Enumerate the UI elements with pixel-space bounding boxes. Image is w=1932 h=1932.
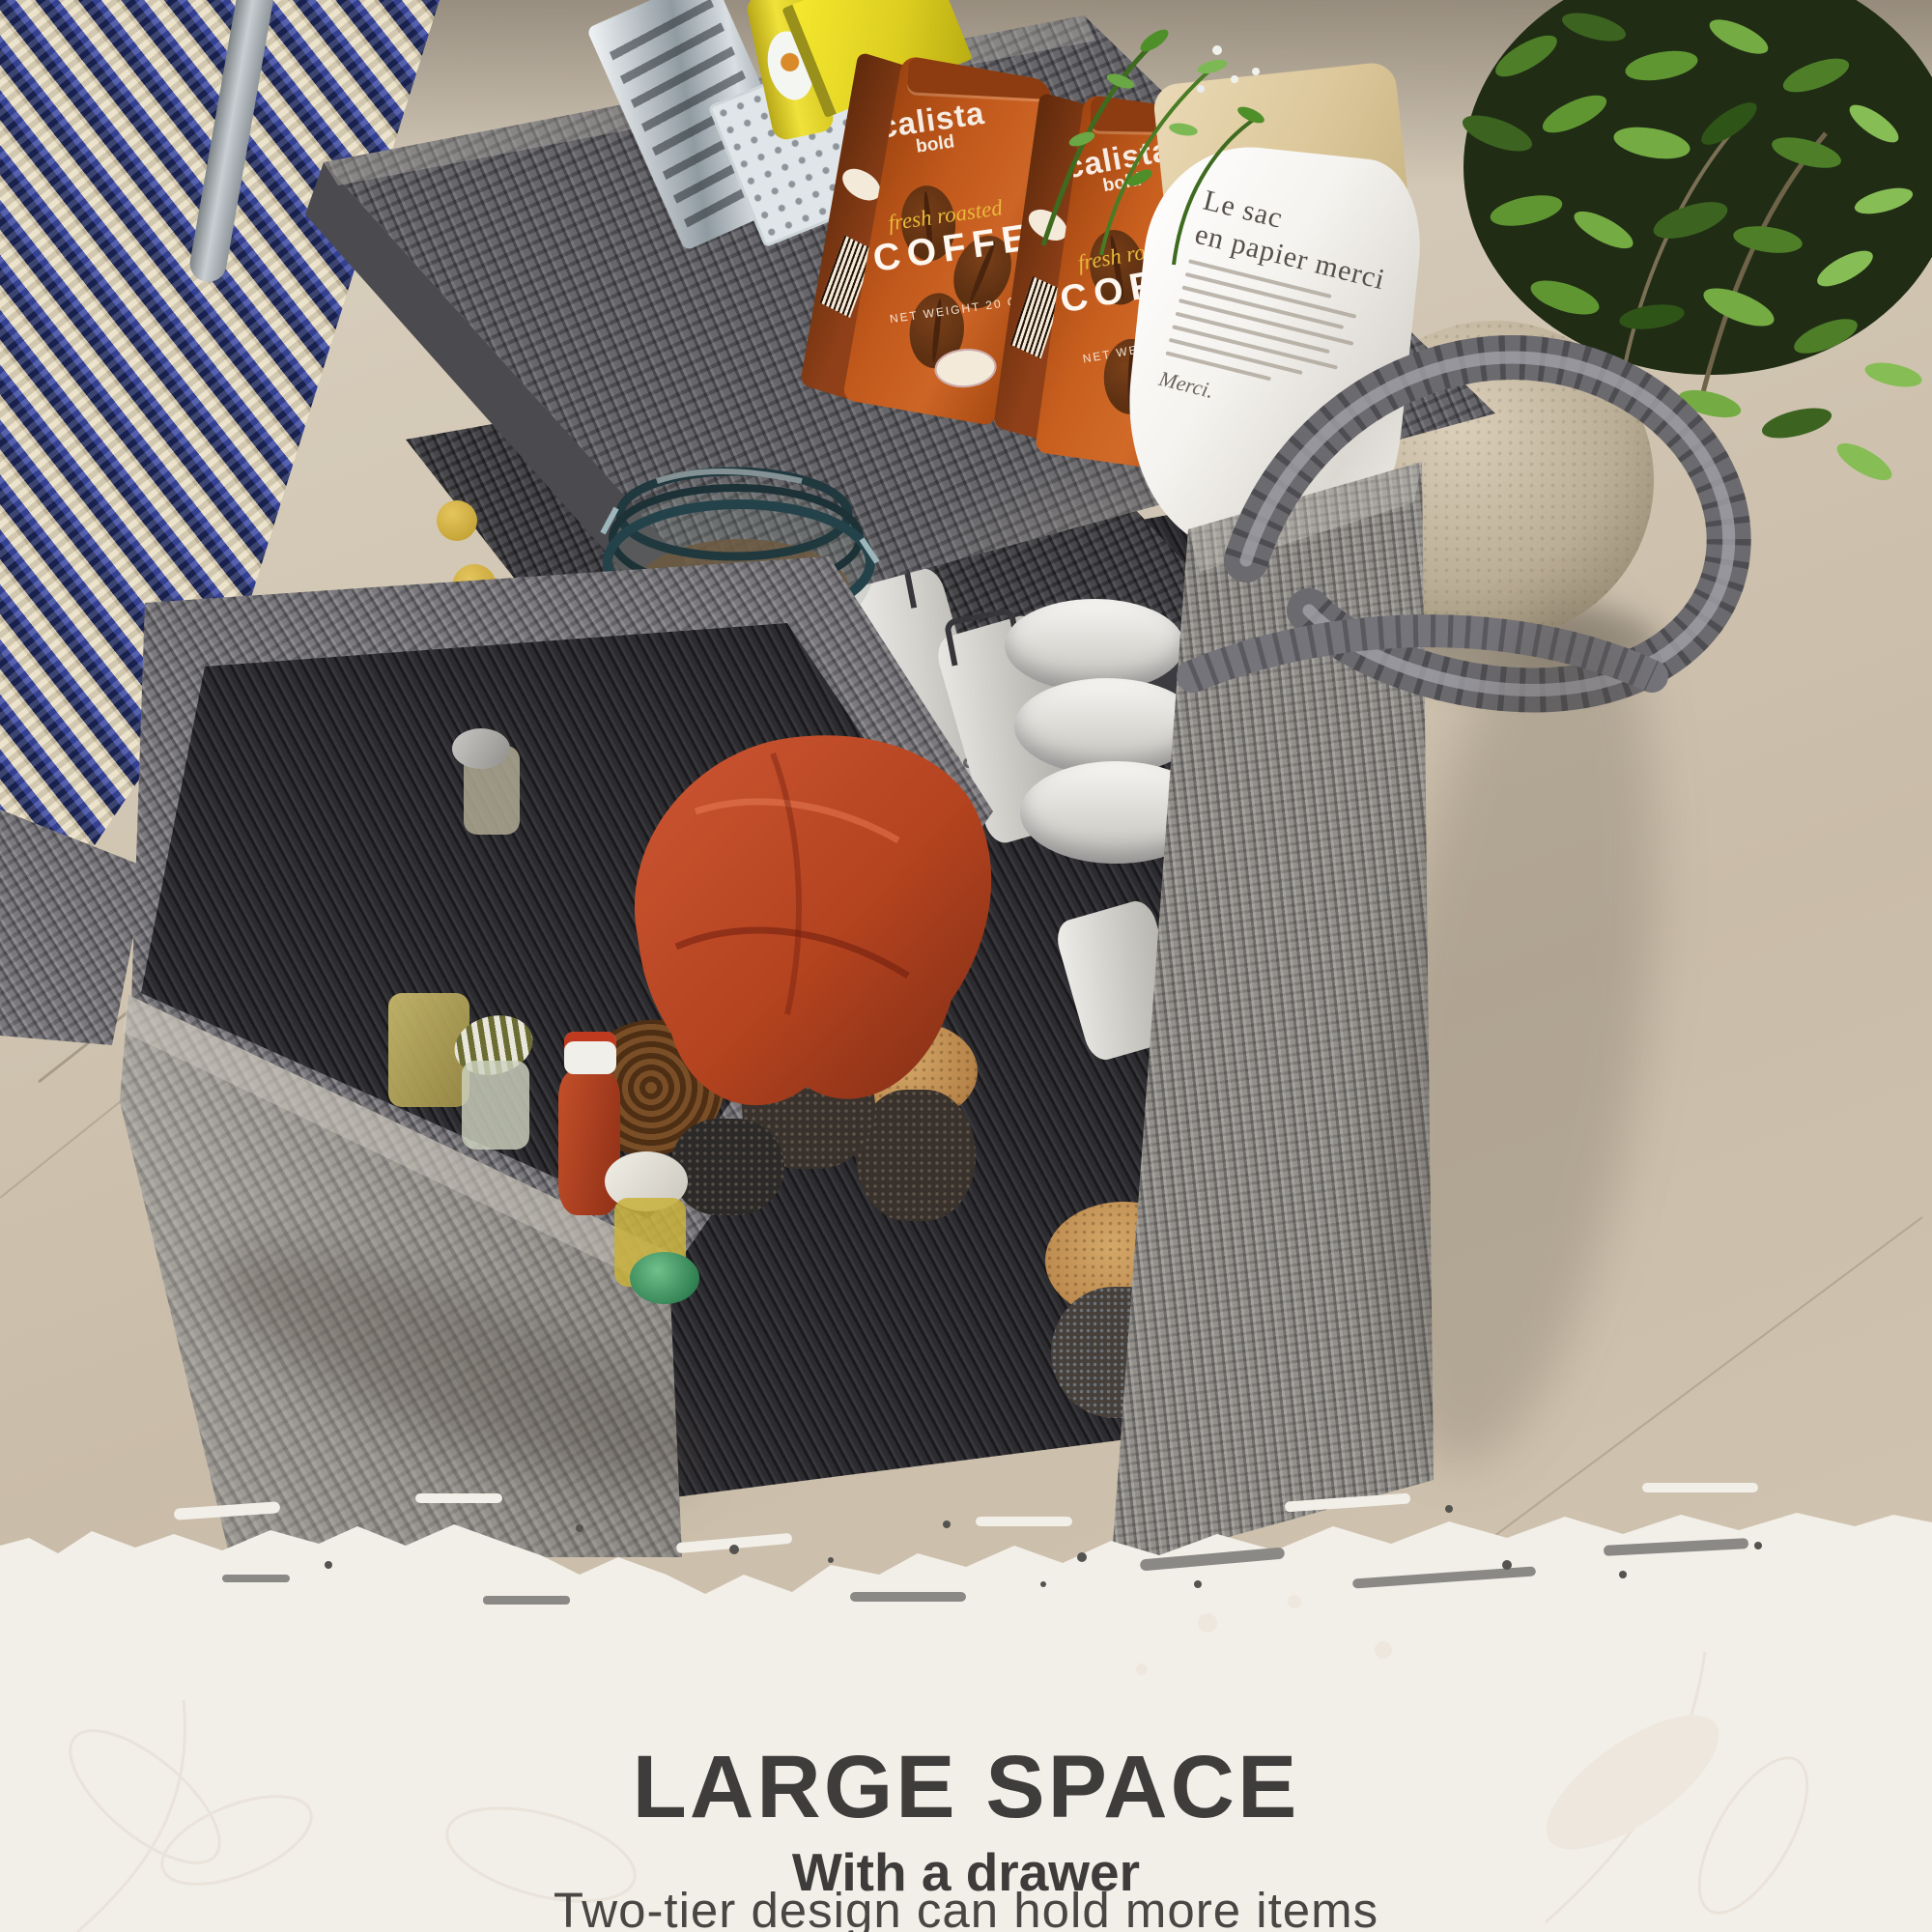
paper-bag: Le sac en papier merci Merci.	[1120, 27, 1442, 575]
lemon	[437, 500, 477, 541]
coffee-brand: calista	[853, 95, 1010, 145]
paper-bag-line1: Le sac	[1200, 185, 1397, 264]
white-bowl	[1014, 678, 1200, 775]
coffee-bean-graphic	[906, 291, 968, 371]
ceramic-canister: Pepper	[828, 564, 999, 810]
paper-bag-fine-print	[1179, 298, 1353, 346]
chrome-tray	[708, 44, 920, 248]
coffee-tagline: fresh roasted	[867, 192, 1023, 239]
coffee-bag-side-badge	[1025, 204, 1071, 247]
coffee-bag-flap	[907, 57, 1054, 99]
sphere-shadow	[1352, 599, 1662, 686]
coffee-bag: calista bold fresh roasted COFFEE NET WE…	[990, 88, 1246, 480]
coffee-variant: bold	[1040, 158, 1204, 208]
paper-bag-fine-print	[1176, 312, 1330, 355]
coffee-bag-side	[800, 51, 915, 401]
utensil-handle	[651, 0, 684, 37]
utensil-handle	[685, 0, 709, 44]
coffee-bean-graphic	[1084, 225, 1151, 309]
canister-clamp	[838, 562, 917, 621]
coffee-bean-graphic	[898, 184, 959, 264]
glass-bottle	[464, 746, 520, 835]
ketchup-bottle	[558, 1068, 620, 1215]
coffee-tagline: fresh roasted	[1053, 227, 1217, 280]
paper-bag-fine-print	[1181, 285, 1344, 328]
paper-bag-closing: Merci.	[1156, 366, 1351, 438]
coffee-bag-side	[993, 92, 1096, 441]
white-bowl	[1020, 761, 1211, 864]
potted-plant	[1410, 0, 1932, 568]
stone-sphere	[1335, 321, 1654, 639]
cork-jar-lid	[850, 1022, 978, 1121]
product-marketing-image: Pepper	[0, 0, 1932, 1932]
paper-bag-fine-print	[1165, 351, 1271, 381]
ketchup-cap	[564, 1032, 616, 1074]
coffee-blend-badge	[933, 347, 998, 389]
glass-jar	[462, 1061, 529, 1150]
headline: LARGE SPACE	[0, 1737, 1932, 1838]
coffee-bag-flap	[1091, 97, 1236, 134]
chrome-utensil-caddy	[586, 0, 810, 251]
coffee-product: COFFEE	[1057, 252, 1224, 323]
paper-bag-body: Le sac en papier merci Merci.	[1114, 137, 1429, 569]
coffee-bean-graphic	[943, 227, 1021, 317]
coffee-bag-barcode	[820, 235, 875, 317]
woven-basket	[563, 1005, 738, 1172]
coffee-bag-front: calista bold fresh roasted COFFEE NET WE…	[842, 55, 1055, 426]
striped-jar-lid	[448, 1008, 539, 1083]
canister-label: Pepper	[892, 744, 980, 788]
paper-bag-fine-print	[1185, 272, 1357, 319]
cart-shadow	[1332, 585, 1702, 1481]
glass-clamp-jar	[599, 446, 889, 678]
oil-jar	[388, 993, 469, 1107]
chair-leg	[187, 0, 279, 285]
lemon	[452, 564, 497, 609]
dark-jar	[670, 1119, 784, 1215]
coffee-blend-badge	[1131, 395, 1197, 440]
paper-bag-fine-print	[1188, 259, 1331, 298]
herb-bunch	[976, 0, 1294, 294]
paper-bag-fine-print	[1169, 338, 1303, 375]
paper-bag-fine-print	[1172, 325, 1338, 369]
ceramic-canister	[1052, 897, 1188, 1065]
red-napkin	[580, 696, 1043, 1179]
coffee-product: COFFEE	[870, 217, 1030, 281]
jar-lid	[605, 1151, 688, 1211]
paper-bag-print: Le sac en papier merci Merci.	[1156, 185, 1397, 438]
caddy-slots	[603, 0, 795, 234]
green-jar-lid	[630, 1252, 699, 1304]
bottle-cap	[452, 728, 510, 769]
yellow-box	[781, 0, 973, 118]
canister-clamp	[943, 607, 1022, 666]
paper-bag-line2: en papier merci	[1192, 218, 1389, 298]
coffee-bag: calista bold fresh roasted COFFEE NET WE…	[798, 47, 1056, 432]
cork-jar-body	[742, 1045, 875, 1169]
pickle-jar	[614, 1198, 686, 1287]
coffee-variant: bold	[857, 124, 1013, 166]
coffee-weight: NET WEIGHT 20 OZ	[1070, 326, 1233, 367]
coffee-brand: calista	[1036, 130, 1201, 186]
paper-bag-fold	[1151, 61, 1410, 249]
white-bowl	[1005, 599, 1184, 692]
dish-soap-bottle	[745, 0, 836, 142]
cork-jar-lid	[1045, 1202, 1202, 1320]
coffee-bean-graphic	[1138, 270, 1212, 358]
cork-jar-body	[856, 1090, 976, 1221]
coffee-bag-print: calista bold fresh roasted COFFEE NET WE…	[1035, 94, 1245, 474]
coffee-bean-graphic	[1102, 338, 1159, 415]
description-text: Two-tier design can hold more items	[0, 1882, 1932, 1932]
cork-jar-lid	[734, 966, 877, 1078]
cork-jar-body	[1051, 1287, 1202, 1418]
patio-shadow	[0, 0, 1932, 208]
coffee-bag-barcode	[1010, 276, 1064, 358]
coffee-bag-side-badge	[838, 162, 885, 207]
cart-handle	[1101, 241, 1835, 744]
soap-label	[761, 27, 819, 104]
coffee-bag-front: calista bold fresh roasted COFFEE NET WE…	[1035, 94, 1245, 474]
coffee-bag-print: calista bold fresh roasted COFFEE NET WE…	[848, 57, 1050, 425]
ceramic-canister	[933, 611, 1094, 847]
lemon	[558, 655, 599, 696]
jar-lid	[373, 930, 478, 1017]
coffee-weight: NET WEIGHT 20 OZ	[881, 292, 1036, 327]
